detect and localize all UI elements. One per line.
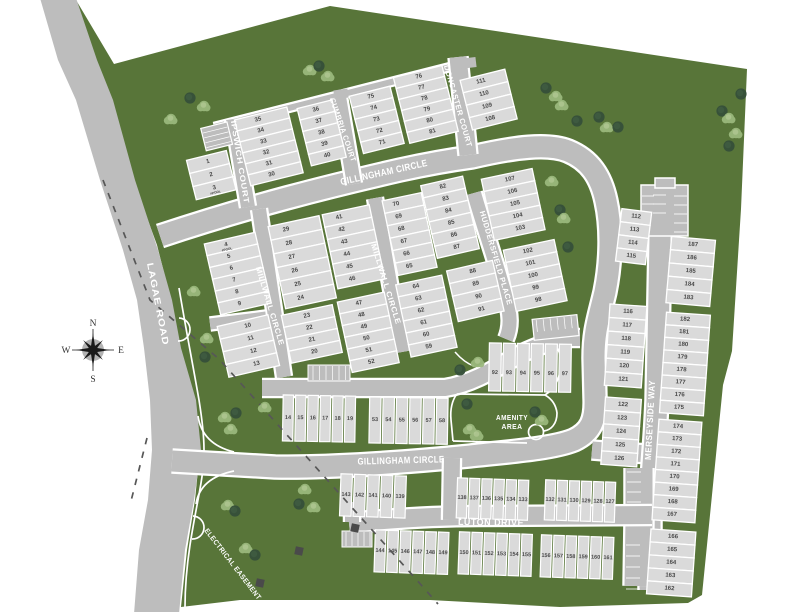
svg-text:155: 155 [522, 552, 531, 558]
svg-text:134: 134 [506, 497, 516, 503]
svg-text:178: 178 [676, 367, 687, 374]
svg-text:E: E [118, 346, 124, 356]
svg-text:152: 152 [484, 551, 493, 557]
svg-text:58: 58 [439, 418, 445, 424]
svg-text:53: 53 [372, 417, 378, 423]
svg-text:168: 168 [667, 499, 678, 506]
svg-text:S: S [90, 375, 95, 385]
svg-text:148: 148 [426, 550, 435, 556]
svg-text:14: 14 [285, 415, 292, 421]
svg-text:93: 93 [506, 370, 512, 376]
svg-text:186: 186 [687, 255, 698, 262]
svg-text:126: 126 [614, 456, 625, 463]
svg-text:16: 16 [310, 415, 316, 421]
svg-text:162: 162 [664, 586, 675, 593]
svg-text:150: 150 [459, 550, 468, 556]
svg-text:138: 138 [457, 495, 466, 501]
svg-text:136: 136 [482, 496, 491, 502]
svg-text:116: 116 [623, 309, 634, 316]
svg-text:54: 54 [385, 417, 392, 423]
svg-text:18: 18 [334, 416, 340, 422]
svg-text:97: 97 [562, 371, 568, 377]
svg-text:143: 143 [341, 492, 350, 498]
svg-text:95: 95 [534, 371, 540, 377]
svg-text:146: 146 [401, 549, 410, 555]
svg-text:158: 158 [566, 554, 575, 560]
svg-text:132: 132 [545, 497, 554, 503]
svg-text:115: 115 [626, 253, 637, 260]
svg-text:144: 144 [375, 548, 385, 554]
svg-text:172: 172 [671, 449, 682, 456]
svg-text:154: 154 [509, 552, 519, 558]
svg-text:184: 184 [684, 281, 695, 288]
svg-text:120: 120 [619, 363, 630, 370]
svg-text:19: 19 [347, 416, 353, 422]
svg-text:185: 185 [685, 268, 696, 275]
svg-text:160: 160 [591, 555, 600, 561]
svg-text:121: 121 [618, 376, 629, 383]
svg-text:139: 139 [395, 494, 404, 500]
svg-text:181: 181 [679, 329, 690, 336]
svg-text:17: 17 [322, 416, 328, 422]
svg-text:140: 140 [382, 493, 391, 499]
svg-text:142: 142 [355, 492, 364, 498]
svg-text:119: 119 [620, 349, 631, 356]
svg-text:176: 176 [674, 392, 685, 399]
svg-text:182: 182 [680, 316, 691, 323]
svg-text:164: 164 [666, 560, 677, 567]
svg-text:113: 113 [629, 227, 640, 234]
svg-text:125: 125 [615, 442, 626, 449]
svg-text:183: 183 [683, 295, 694, 302]
svg-text:166: 166 [668, 534, 679, 541]
svg-text:187: 187 [688, 242, 699, 249]
svg-text:156: 156 [541, 553, 550, 559]
svg-text:161: 161 [603, 555, 612, 561]
svg-text:127: 127 [605, 499, 614, 505]
svg-text:94: 94 [520, 370, 527, 376]
svg-text:173: 173 [672, 436, 683, 443]
svg-text:135: 135 [494, 496, 503, 502]
svg-text:N: N [90, 319, 97, 329]
svg-text:124: 124 [616, 429, 627, 436]
svg-text:117: 117 [622, 322, 633, 329]
svg-text:114: 114 [628, 240, 639, 247]
svg-text:AMENITY: AMENITY [496, 413, 528, 422]
svg-text:167: 167 [667, 511, 678, 518]
svg-text:GILLINGHAM CIRCLE: GILLINGHAM CIRCLE [357, 454, 444, 467]
svg-text:128: 128 [593, 499, 602, 505]
svg-text:130: 130 [569, 498, 578, 504]
svg-text:177: 177 [675, 379, 686, 386]
svg-text:180: 180 [678, 342, 689, 349]
svg-text:151: 151 [472, 550, 481, 556]
svg-text:56: 56 [412, 418, 418, 424]
svg-text:118: 118 [621, 336, 632, 343]
svg-text:175: 175 [674, 404, 685, 411]
svg-text:165: 165 [667, 547, 678, 554]
svg-text:112: 112 [631, 213, 642, 220]
svg-text:137: 137 [470, 495, 479, 501]
svg-text:179: 179 [677, 354, 688, 361]
svg-text:96: 96 [548, 371, 554, 377]
svg-text:92: 92 [492, 370, 498, 376]
svg-text:55: 55 [399, 417, 405, 423]
svg-text:171: 171 [670, 461, 681, 468]
svg-text:159: 159 [579, 554, 588, 560]
svg-text:170: 170 [669, 474, 680, 481]
svg-text:131: 131 [557, 497, 566, 503]
svg-text:15: 15 [297, 415, 303, 421]
svg-text:122: 122 [618, 402, 629, 409]
svg-text:157: 157 [554, 553, 563, 559]
svg-text:133: 133 [518, 497, 527, 503]
svg-text:LUTON DRIVE: LUTON DRIVE [458, 517, 524, 529]
svg-text:163: 163 [665, 573, 676, 580]
svg-text:AREA: AREA [502, 422, 523, 431]
svg-text:57: 57 [425, 418, 431, 424]
svg-text:123: 123 [617, 415, 628, 422]
svg-text:149: 149 [438, 550, 447, 556]
svg-text:169: 169 [668, 486, 679, 493]
svg-text:153: 153 [497, 551, 506, 557]
svg-text:147: 147 [413, 549, 422, 555]
svg-text:W: W [62, 346, 71, 356]
svg-text:129: 129 [581, 498, 590, 504]
svg-text:174: 174 [673, 424, 684, 431]
svg-text:141: 141 [368, 493, 377, 499]
